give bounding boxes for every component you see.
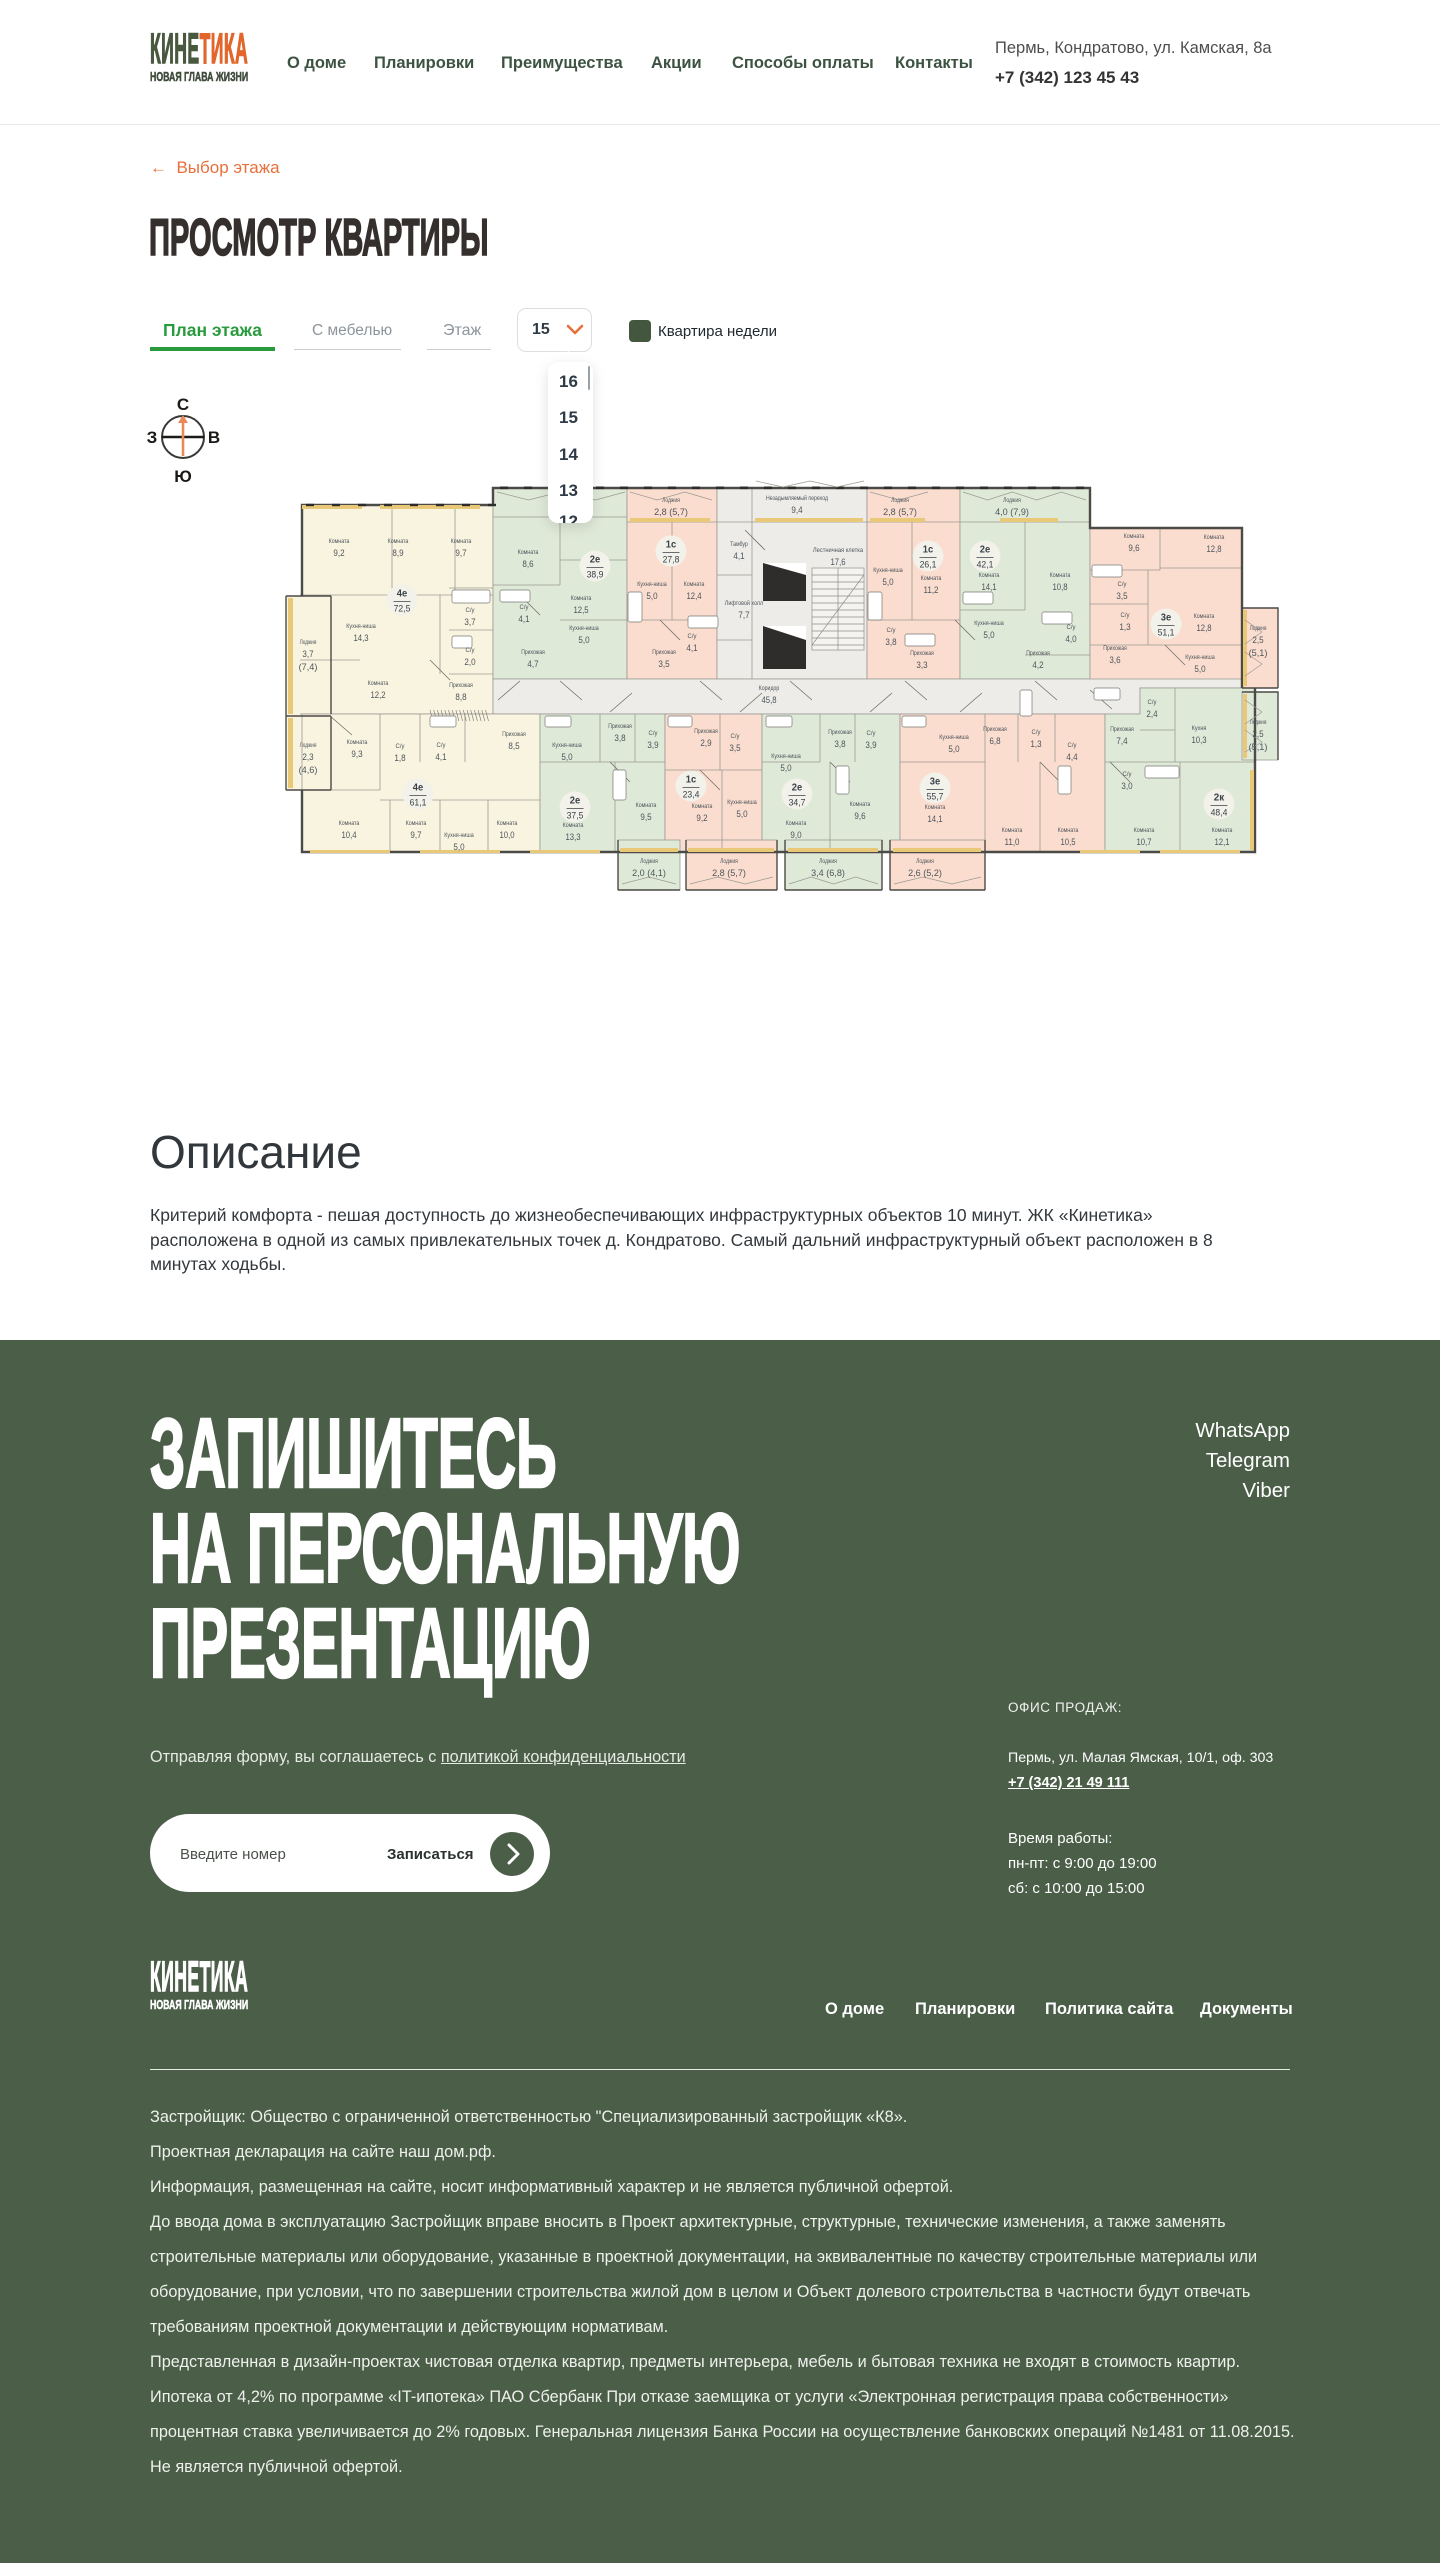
svg-text:9,0: 9,0 xyxy=(790,830,801,840)
svg-text:(4,6): (4,6) xyxy=(299,765,318,775)
svg-text:Комната: Комната xyxy=(786,820,807,827)
svg-text:С/у: С/у xyxy=(887,627,897,634)
svg-text:Комната: Комната xyxy=(388,538,409,545)
svg-text:72,5: 72,5 xyxy=(394,604,411,614)
svg-text:Лоджия: Лоджия xyxy=(300,742,317,749)
svg-text:2,8 (5,7): 2,8 (5,7) xyxy=(654,507,688,517)
svg-text:Прихожая: Прихожая xyxy=(1103,645,1127,652)
svg-text:10,8: 10,8 xyxy=(1053,582,1068,592)
svg-text:5,0: 5,0 xyxy=(561,752,572,762)
svg-text:Кухня-ниша: Кухня-ниша xyxy=(552,742,582,749)
svg-text:9,6: 9,6 xyxy=(854,811,865,821)
svg-text:9,3: 9,3 xyxy=(351,749,362,759)
svg-text:Прихожая: Прихожая xyxy=(652,649,676,656)
svg-text:3,5: 3,5 xyxy=(658,659,669,669)
svg-text:4,0 (7,9): 4,0 (7,9) xyxy=(995,507,1029,517)
svg-text:1с: 1с xyxy=(666,539,677,551)
svg-text:С/у: С/у xyxy=(437,742,447,749)
svg-text:2,6 (5,2): 2,6 (5,2) xyxy=(908,868,942,878)
svg-text:4,2: 4,2 xyxy=(1032,660,1043,670)
svg-text:3,9: 3,9 xyxy=(647,740,658,750)
svg-text:4,0: 4,0 xyxy=(1065,634,1076,644)
svg-text:Комната: Комната xyxy=(1002,827,1023,834)
svg-text:3,0: 3,0 xyxy=(1121,781,1132,791)
svg-text:(5,1): (5,1) xyxy=(1249,742,1268,752)
svg-text:3,6: 3,6 xyxy=(1109,655,1120,665)
svg-text:14,3: 14,3 xyxy=(354,633,369,643)
svg-text:Кухня-ниша: Кухня-ниша xyxy=(1185,654,1215,661)
svg-text:С/у: С/у xyxy=(1032,729,1042,736)
svg-text:Лестничная клетка: Лестничная клетка xyxy=(813,547,863,554)
svg-text:5,0: 5,0 xyxy=(983,630,994,640)
svg-text:12,5: 12,5 xyxy=(574,605,589,615)
svg-text:8,8: 8,8 xyxy=(455,692,466,702)
svg-text:48,4: 48,4 xyxy=(1211,808,1228,818)
svg-text:17,6: 17,6 xyxy=(831,557,846,567)
svg-text:10,4: 10,4 xyxy=(342,830,357,840)
svg-text:Комната: Комната xyxy=(1204,534,1225,541)
svg-text:3е: 3е xyxy=(930,776,941,788)
svg-text:Незадымляемый переход: Незадымляемый переход xyxy=(766,494,828,502)
svg-text:51,1: 51,1 xyxy=(1158,628,1175,638)
svg-text:Комната: Комната xyxy=(1058,827,1079,834)
svg-text:Прихожая: Прихожая xyxy=(1110,726,1134,733)
svg-text:В: В xyxy=(208,428,220,447)
svg-text:Прихожая: Прихожая xyxy=(608,723,632,730)
svg-text:Тамбур: Тамбур xyxy=(730,540,748,548)
svg-text:Лоджия: Лоджия xyxy=(640,858,658,865)
svg-text:38,9: 38,9 xyxy=(587,570,604,580)
svg-text:С/у: С/у xyxy=(1067,624,1077,631)
svg-text:Комната: Комната xyxy=(921,575,942,582)
svg-text:С/у: С/у xyxy=(396,743,406,750)
svg-text:Кухня-ниша: Кухня-ниша xyxy=(873,567,903,574)
svg-text:Лоджия: Лоджия xyxy=(300,639,317,646)
svg-text:2,0: 2,0 xyxy=(464,657,475,667)
svg-text:4,1: 4,1 xyxy=(435,752,446,762)
svg-text:4е: 4е xyxy=(397,588,408,600)
svg-text:3,5: 3,5 xyxy=(1116,591,1127,601)
svg-text:Прихожая: Прихожая xyxy=(1026,650,1050,657)
svg-text:Лоджия: Лоджия xyxy=(1250,719,1267,726)
svg-text:10,5: 10,5 xyxy=(1061,837,1076,847)
svg-text:3,5: 3,5 xyxy=(729,743,740,753)
svg-text:1,3: 1,3 xyxy=(1119,622,1130,632)
svg-text:8,6: 8,6 xyxy=(522,559,533,569)
svg-text:Комната: Комната xyxy=(979,572,1000,579)
svg-text:5,0: 5,0 xyxy=(578,635,589,645)
svg-text:42,1: 42,1 xyxy=(977,560,994,570)
svg-text:Прихожая: Прихожая xyxy=(910,650,934,657)
svg-text:11,2: 11,2 xyxy=(924,585,939,595)
svg-text:4,1: 4,1 xyxy=(518,614,529,624)
svg-text:Комната: Комната xyxy=(1134,827,1155,834)
svg-text:37,5: 37,5 xyxy=(567,811,584,821)
svg-text:10,0: 10,0 xyxy=(500,830,515,840)
svg-text:Комната: Комната xyxy=(497,820,518,827)
svg-text:2,5: 2,5 xyxy=(1252,635,1263,645)
svg-text:2е: 2е xyxy=(590,554,601,566)
svg-text:9,4: 9,4 xyxy=(791,505,802,515)
svg-text:45,8: 45,8 xyxy=(762,695,777,705)
svg-text:1,3: 1,3 xyxy=(1030,739,1041,749)
svg-text:(7,4): (7,4) xyxy=(299,662,318,672)
svg-text:Комната: Комната xyxy=(636,802,657,809)
svg-text:С/у: С/у xyxy=(520,604,530,611)
svg-text:Комната: Комната xyxy=(692,803,713,810)
svg-text:З: З xyxy=(147,428,158,447)
svg-text:С/у: С/у xyxy=(1118,581,1128,588)
svg-text:8,9: 8,9 xyxy=(392,548,403,558)
svg-text:Прихожая: Прихожая xyxy=(449,682,473,689)
svg-text:61,1: 61,1 xyxy=(410,798,427,808)
svg-text:С/у: С/у xyxy=(466,647,476,654)
svg-text:7,7: 7,7 xyxy=(738,610,749,620)
svg-text:3,3: 3,3 xyxy=(916,660,927,670)
svg-text:Лоджия: Лоджия xyxy=(720,858,738,865)
svg-text:27,8: 27,8 xyxy=(663,555,680,565)
svg-text:(5,1): (5,1) xyxy=(1249,648,1268,658)
svg-text:2е: 2е xyxy=(570,795,581,807)
svg-text:4,4: 4,4 xyxy=(1066,752,1077,762)
svg-text:1,8: 1,8 xyxy=(394,753,405,763)
svg-text:5,0: 5,0 xyxy=(646,591,657,601)
svg-text:12,4: 12,4 xyxy=(687,591,702,601)
svg-text:Комната: Комната xyxy=(451,538,472,545)
svg-text:С/у: С/у xyxy=(649,730,659,737)
svg-text:Кухня-ниша: Кухня-ниша xyxy=(569,625,599,632)
svg-text:1с: 1с xyxy=(923,544,934,556)
svg-text:2,4: 2,4 xyxy=(1146,709,1157,719)
svg-text:С/у: С/у xyxy=(731,733,741,740)
svg-text:9,7: 9,7 xyxy=(410,830,421,840)
svg-text:Лоджия: Лоджия xyxy=(1250,625,1267,632)
svg-text:Лоджия: Лоджия xyxy=(819,858,837,865)
svg-text:Комната: Комната xyxy=(406,820,427,827)
svg-text:Кухня-ниша: Кухня-ниша xyxy=(444,832,474,839)
svg-text:Прихожая: Прихожая xyxy=(521,649,545,656)
svg-text:5,0: 5,0 xyxy=(882,577,893,587)
svg-text:2,0 (4,1): 2,0 (4,1) xyxy=(632,868,666,878)
svg-text:С/у: С/у xyxy=(1121,612,1131,619)
svg-text:Комната: Комната xyxy=(518,549,539,556)
svg-text:8,5: 8,5 xyxy=(508,741,519,751)
svg-text:Ю: Ю xyxy=(174,467,192,486)
svg-text:Кухня-ниша: Кухня-ниша xyxy=(974,620,1004,627)
svg-text:Комната: Комната xyxy=(368,680,389,687)
svg-text:5,0: 5,0 xyxy=(453,842,464,852)
svg-text:2,3: 2,3 xyxy=(302,752,313,762)
svg-text:Коридор: Коридор xyxy=(759,685,780,692)
svg-text:14,1: 14,1 xyxy=(982,582,997,592)
svg-text:3,8: 3,8 xyxy=(614,733,625,743)
svg-text:12,8: 12,8 xyxy=(1207,544,1222,554)
svg-text:Кухня-ниша: Кухня-ниша xyxy=(637,581,667,588)
svg-text:23,4: 23,4 xyxy=(683,790,700,800)
svg-text:3е: 3е xyxy=(1161,612,1172,624)
svg-text:Кухня-ниша: Кухня-ниша xyxy=(771,753,801,760)
svg-text:9,5: 9,5 xyxy=(640,812,651,822)
svg-text:С/у: С/у xyxy=(867,730,877,737)
svg-text:7,4: 7,4 xyxy=(1116,736,1127,746)
svg-text:Лоджия: Лоджия xyxy=(1003,497,1021,504)
svg-text:Лоджия: Лоджия xyxy=(662,497,680,504)
svg-text:С/у: С/у xyxy=(1148,699,1158,706)
svg-text:9,6: 9,6 xyxy=(1128,543,1139,553)
svg-text:10,3: 10,3 xyxy=(1192,735,1207,745)
svg-text:4,1: 4,1 xyxy=(733,551,744,561)
svg-text:Прихожая: Прихожая xyxy=(828,729,852,736)
svg-text:С: С xyxy=(177,395,189,414)
svg-text:34,7: 34,7 xyxy=(789,798,806,808)
svg-text:Лоджия: Лоджия xyxy=(916,858,934,865)
svg-text:2,8 (5,7): 2,8 (5,7) xyxy=(883,507,917,517)
svg-text:10,7: 10,7 xyxy=(1137,837,1152,847)
svg-text:5,0: 5,0 xyxy=(948,744,959,754)
svg-text:Лоджия: Лоджия xyxy=(891,497,909,504)
svg-text:4,7: 4,7 xyxy=(527,659,538,669)
svg-text:3,8: 3,8 xyxy=(885,637,896,647)
svg-text:Комната: Комната xyxy=(571,595,592,602)
svg-text:Комната: Комната xyxy=(1194,613,1215,620)
svg-text:Комната: Комната xyxy=(563,822,584,829)
svg-text:2,8 (5,7): 2,8 (5,7) xyxy=(712,868,746,878)
svg-text:2е: 2е xyxy=(792,782,803,794)
svg-text:26,1: 26,1 xyxy=(920,560,937,570)
svg-text:Комната: Комната xyxy=(1124,533,1145,540)
svg-text:9,2: 9,2 xyxy=(333,548,344,558)
svg-text:5,0: 5,0 xyxy=(780,763,791,773)
svg-text:Кухня-ниша: Кухня-ниша xyxy=(346,623,376,630)
svg-text:4е: 4е xyxy=(413,782,424,794)
svg-text:Комната: Комната xyxy=(339,820,360,827)
svg-text:6,8: 6,8 xyxy=(989,736,1000,746)
svg-text:2к: 2к xyxy=(1214,792,1225,804)
svg-text:С/у: С/у xyxy=(1123,771,1133,778)
svg-text:Кухня-ниша: Кухня-ниша xyxy=(727,799,757,806)
svg-text:Комната: Комната xyxy=(684,581,705,588)
svg-text:Комната: Комната xyxy=(1050,572,1071,579)
svg-text:5,0: 5,0 xyxy=(1194,664,1205,674)
svg-text:3,7: 3,7 xyxy=(302,649,313,659)
svg-text:С/у: С/у xyxy=(466,607,476,614)
svg-text:12,8: 12,8 xyxy=(1197,623,1212,633)
svg-text:3,9: 3,9 xyxy=(865,740,876,750)
svg-text:Комната: Комната xyxy=(850,801,871,808)
svg-text:Комната: Комната xyxy=(347,739,368,746)
svg-text:Прихожая: Прихожая xyxy=(502,731,526,738)
svg-text:Лифтовой холл: Лифтовой холл xyxy=(725,599,763,607)
svg-text:3,7: 3,7 xyxy=(464,617,475,627)
svg-text:С/у: С/у xyxy=(688,633,698,640)
svg-text:3,8: 3,8 xyxy=(834,739,845,749)
svg-text:55,7: 55,7 xyxy=(927,792,944,802)
svg-text:Комната: Комната xyxy=(1212,827,1233,834)
svg-text:1с: 1с xyxy=(686,774,697,786)
svg-text:2е: 2е xyxy=(980,544,991,556)
svg-text:5,0: 5,0 xyxy=(736,809,747,819)
svg-text:Кухня: Кухня xyxy=(1192,725,1207,732)
svg-text:14,1: 14,1 xyxy=(928,814,943,824)
svg-text:2,9: 2,9 xyxy=(700,738,711,748)
svg-text:11,0: 11,0 xyxy=(1005,837,1020,847)
svg-text:Кухня-ниша: Кухня-ниша xyxy=(939,734,969,741)
svg-text:12,2: 12,2 xyxy=(371,690,386,700)
svg-text:3,4 (6,8): 3,4 (6,8) xyxy=(811,868,845,878)
svg-text:9,2: 9,2 xyxy=(696,813,707,823)
svg-text:Прихожая: Прихожая xyxy=(694,728,718,735)
svg-text:С/у: С/у xyxy=(1068,742,1078,749)
svg-text:12,1: 12,1 xyxy=(1215,837,1230,847)
svg-text:9,7: 9,7 xyxy=(455,548,466,558)
svg-text:Комната: Комната xyxy=(925,804,946,811)
svg-text:13,3: 13,3 xyxy=(566,832,581,842)
svg-text:Комната: Комната xyxy=(329,538,350,545)
svg-text:2,5: 2,5 xyxy=(1252,729,1263,739)
svg-text:4,1: 4,1 xyxy=(686,643,697,653)
svg-text:Прихожая: Прихожая xyxy=(983,726,1007,733)
